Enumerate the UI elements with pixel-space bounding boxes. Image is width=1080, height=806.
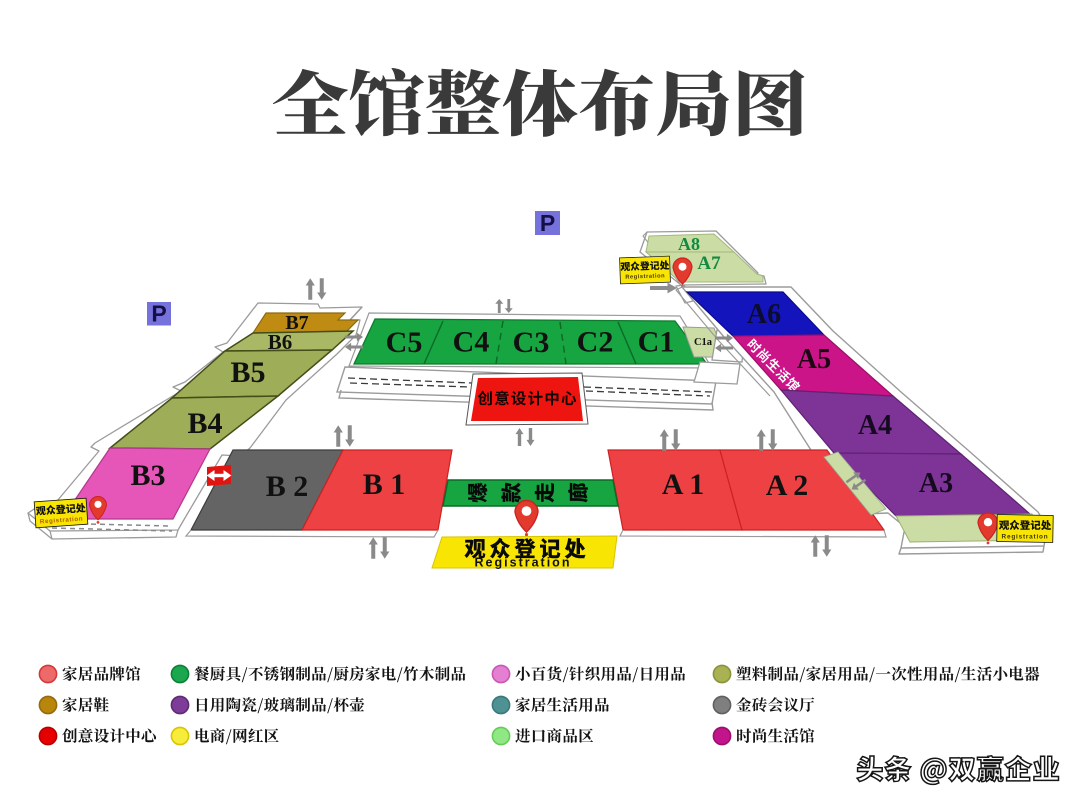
svg-text:B5: B5 [230,356,265,389]
svg-text:A 1: A 1 [662,468,705,501]
svg-text:C1: C1 [638,326,675,359]
svg-text:C1a: C1a [694,337,713,348]
svg-text:C5: C5 [386,326,423,359]
svg-text:A5: A5 [797,344,831,375]
svg-text:Registration: Registration [1002,534,1049,541]
svg-text:B4: B4 [187,407,222,440]
svg-text:A7: A7 [697,253,721,274]
svg-text:Registration: Registration [475,556,572,570]
svg-text:B 2: B 2 [266,470,309,503]
svg-text:P: P [151,301,166,327]
svg-text:A6: A6 [747,299,781,330]
svg-text:C3: C3 [513,326,550,359]
svg-text:P: P [540,210,555,236]
svg-text:A3: A3 [919,468,953,499]
svg-text:B 1: B 1 [363,468,406,501]
svg-text:C4: C4 [453,326,490,359]
svg-text:A8: A8 [678,234,700,254]
svg-text:A4: A4 [858,410,892,441]
svg-text:B3: B3 [130,459,165,492]
svg-text:C2: C2 [577,326,614,359]
svg-text:A 2: A 2 [766,469,809,502]
